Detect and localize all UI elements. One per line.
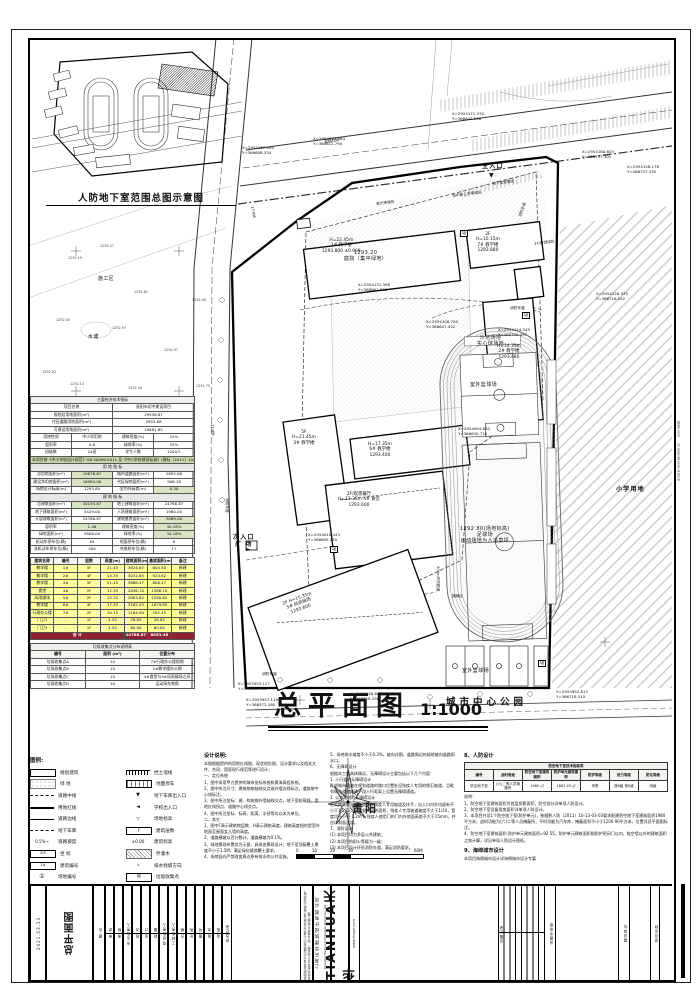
drawing-sheet: X=2954167.000 Y=366608.334X=2954175.364 … bbox=[0, 0, 700, 990]
sheet-inner-frame bbox=[28, 38, 676, 982]
right-margin-text: 贵阳市初中建设项目 · 总平面图 bbox=[676, 420, 681, 481]
binding-bar bbox=[681, 884, 685, 978]
